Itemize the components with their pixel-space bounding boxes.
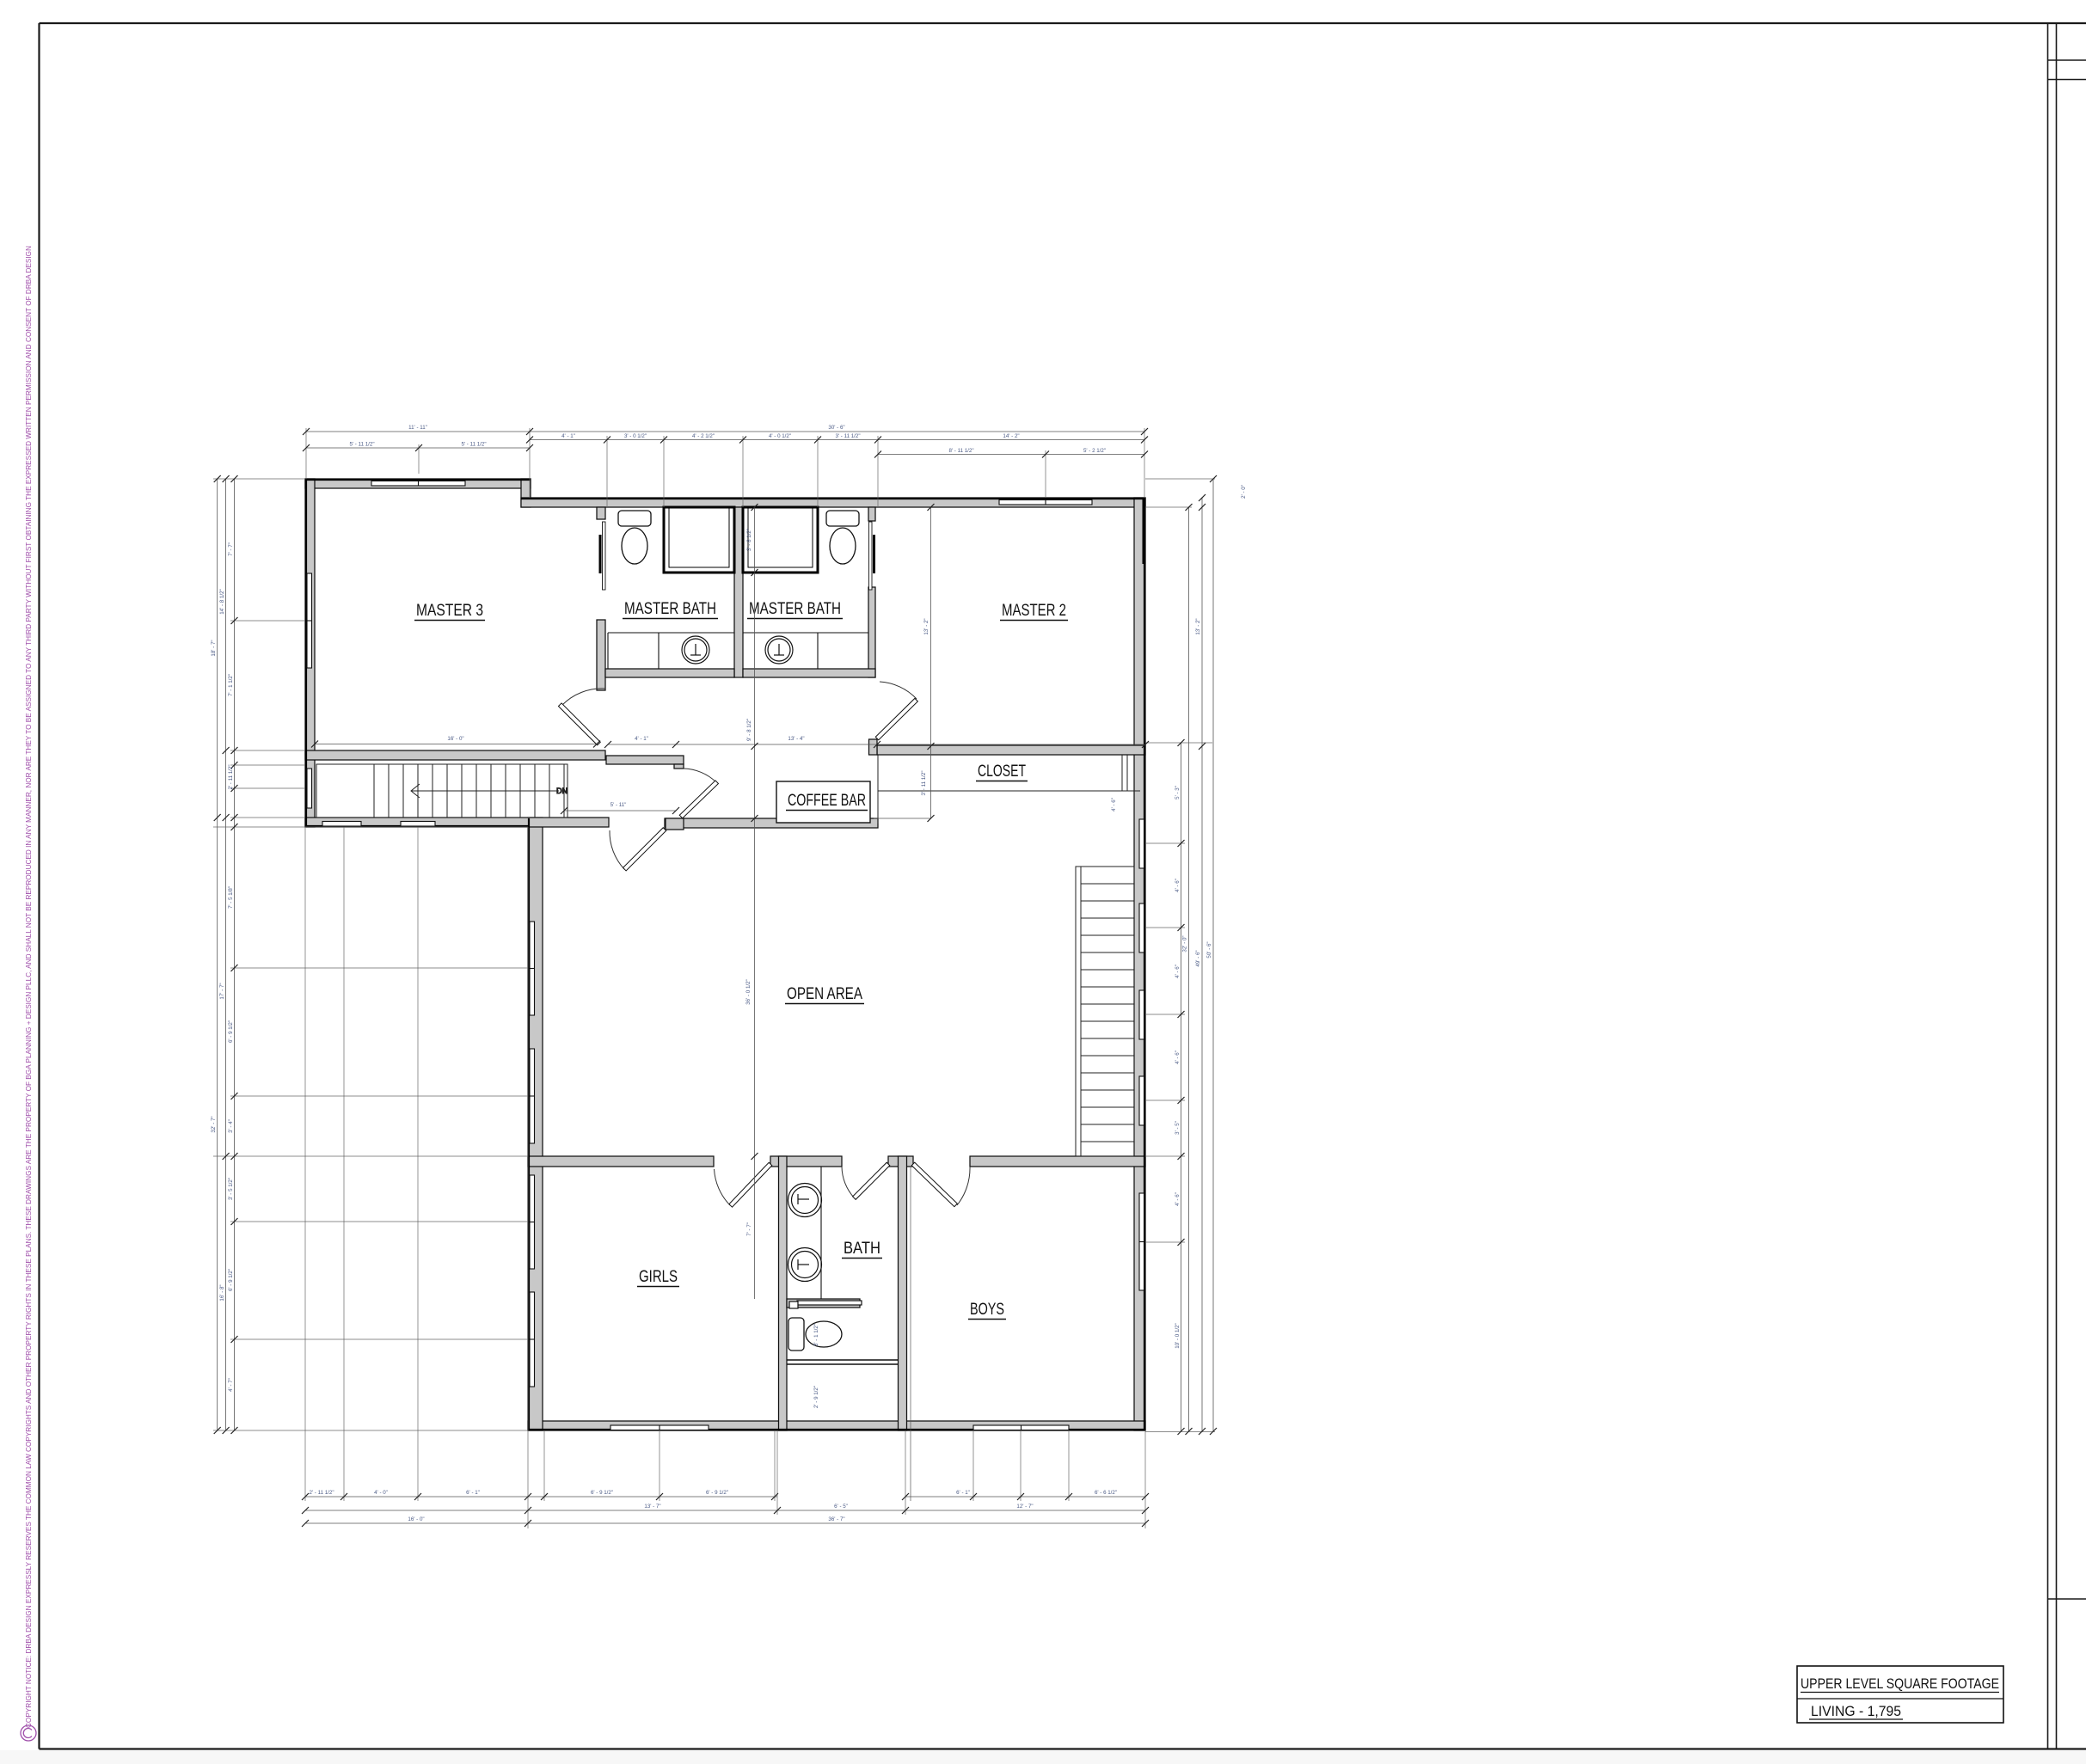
svg-text:UPPER LEVEL SQUARE FOOTAGE: UPPER LEVEL SQUARE FOOTAGE — [1801, 1675, 1999, 1692]
svg-text:MASTER 2: MASTER 2 — [1002, 602, 1066, 620]
svg-text:13' - 2": 13' - 2" — [1195, 618, 1201, 634]
svg-text:13' - 7": 13' - 7" — [644, 1504, 660, 1510]
svg-text:18' - 7": 18' - 7" — [211, 640, 217, 656]
svg-text:16' - 0": 16' - 0" — [447, 736, 463, 742]
svg-text:3' - 11 1/2": 3' - 11 1/2" — [835, 433, 860, 439]
svg-text:6' - 9 1/2": 6' - 9 1/2" — [591, 1490, 613, 1496]
svg-text:DN: DN — [556, 787, 568, 795]
svg-text:4' - 1": 4' - 1" — [561, 433, 575, 439]
svg-text:4' - 2 1/2": 4' - 2 1/2" — [692, 433, 715, 439]
svg-text:7' - 7": 7' - 7" — [746, 1222, 752, 1236]
svg-text:MASTER 3: MASTER 3 — [416, 602, 483, 620]
svg-text:14' - 2": 14' - 2" — [1003, 433, 1019, 439]
svg-text:6' - 5": 6' - 5" — [834, 1504, 848, 1510]
svg-text:BATH: BATH — [844, 1240, 880, 1258]
svg-text:3' - 5 1/2": 3' - 5 1/2" — [228, 1178, 234, 1200]
svg-text:6' - 1": 6' - 1" — [466, 1490, 480, 1496]
svg-text:13' - 2": 13' - 2" — [923, 618, 929, 634]
svg-text:3' - 4": 3' - 4" — [228, 1119, 234, 1133]
svg-text:4' - 6": 4' - 6" — [1175, 1192, 1181, 1206]
svg-text:6' - 9 1/2": 6' - 9 1/2" — [228, 1269, 234, 1291]
svg-text:4' - 0 1/2": 4' - 0 1/2" — [769, 433, 791, 439]
svg-text:GIRLS: GIRLS — [639, 1268, 678, 1286]
svg-text:2' - 0": 2' - 0" — [1241, 485, 1247, 499]
svg-text:BOYS: BOYS — [970, 1301, 1004, 1319]
svg-text:9' - 8 1/2": 9' - 8 1/2" — [746, 719, 752, 741]
svg-text:7' - 7": 7' - 7" — [228, 542, 234, 556]
svg-text:LIVING - 1,795: LIVING - 1,795 — [1811, 1703, 1901, 1719]
svg-text:4' - 6": 4' - 6" — [1111, 798, 1117, 812]
svg-text:5' - 11": 5' - 11" — [610, 802, 627, 808]
svg-text:4' - 6": 4' - 6" — [1175, 879, 1181, 892]
svg-text:3' - 1 1/2": 3' - 1 1/2" — [813, 1324, 819, 1346]
svg-text:8' - 11 1/2": 8' - 11 1/2" — [948, 448, 973, 454]
svg-text:11' - 11": 11' - 11" — [408, 425, 427, 431]
svg-text:13' - 4": 13' - 4" — [788, 736, 804, 742]
svg-text:4' - 0": 4' - 0" — [374, 1490, 388, 1496]
svg-text:6' - 1": 6' - 1" — [956, 1490, 970, 1496]
svg-text:32' - 7": 32' - 7" — [211, 1116, 217, 1132]
svg-text:2' - 11 1/2": 2' - 11 1/2" — [309, 1490, 334, 1496]
svg-text:49' - 6": 49' - 6" — [1195, 950, 1201, 966]
svg-text:3' - 11 1/2": 3' - 11 1/2" — [921, 770, 927, 795]
svg-text:50' - 6": 50' - 6" — [1206, 941, 1212, 958]
svg-text:3' - 5": 3' - 5" — [1175, 1121, 1181, 1135]
svg-text:6' - 9 1/2": 6' - 9 1/2" — [706, 1490, 728, 1496]
svg-text:4' - 6": 4' - 6" — [1175, 1050, 1181, 1064]
svg-text:3' - 0 1/2": 3' - 0 1/2" — [624, 433, 647, 439]
svg-text:2' - 9 1/2": 2' - 9 1/2" — [813, 1386, 819, 1408]
svg-text:MASTER BATH: MASTER BATH — [749, 600, 841, 618]
svg-text:4' - 7": 4' - 7" — [228, 1378, 234, 1392]
svg-text:6' - 9 1/2": 6' - 9 1/2" — [228, 1020, 234, 1043]
svg-text:10' - 0 1/2": 10' - 0 1/2" — [1175, 1323, 1181, 1349]
svg-text:12' - 7": 12' - 7" — [1016, 1504, 1033, 1510]
svg-text:6' - 6 1/2": 6' - 6 1/2" — [1095, 1490, 1117, 1496]
svg-text:17' - 7": 17' - 7" — [219, 983, 225, 999]
svg-text:5' - 3": 5' - 3" — [1175, 786, 1181, 799]
svg-text:36' - 7": 36' - 7" — [828, 1516, 844, 1522]
svg-text:COPYRIGHT NOTICE: DRBA DESIGN: COPYRIGHT NOTICE: DRBA DESIGN EXPRESSLY … — [24, 246, 33, 1728]
svg-text:OPEN AREA: OPEN AREA — [787, 985, 862, 1003]
svg-text:14' - 8 1/2": 14' - 8 1/2" — [219, 589, 225, 615]
svg-text:CLOSET: CLOSET — [978, 763, 1026, 781]
svg-text:COFFEE BAR: COFFEE BAR — [788, 792, 866, 810]
svg-text:MASTER BATH: MASTER BATH — [624, 600, 716, 618]
svg-text:4' - 1": 4' - 1" — [635, 736, 648, 742]
svg-text:32' - 0": 32' - 0" — [1182, 935, 1188, 952]
svg-text:16' - 8": 16' - 8" — [219, 1284, 225, 1301]
svg-text:36' - 0 1/2": 36' - 0 1/2" — [745, 979, 752, 1005]
svg-text:3' - 8 1/2": 3' - 8 1/2" — [746, 529, 752, 551]
svg-text:30' - 6": 30' - 6" — [828, 425, 844, 431]
svg-text:7' - 1 1/2": 7' - 1 1/2" — [228, 674, 234, 696]
svg-text:5' - 11 1/2": 5' - 11 1/2" — [349, 442, 374, 448]
svg-text:4' - 6": 4' - 6" — [1175, 965, 1181, 978]
svg-text:16' - 0": 16' - 0" — [408, 1516, 424, 1522]
svg-text:5' - 11 1/2": 5' - 11 1/2" — [461, 442, 486, 448]
svg-text:7' - 5 1/8": 7' - 5 1/8" — [228, 886, 234, 909]
svg-text:5' - 2 1/2": 5' - 2 1/2" — [1083, 448, 1106, 454]
svg-text:2' - 11 1/2": 2' - 11 1/2" — [228, 764, 234, 789]
